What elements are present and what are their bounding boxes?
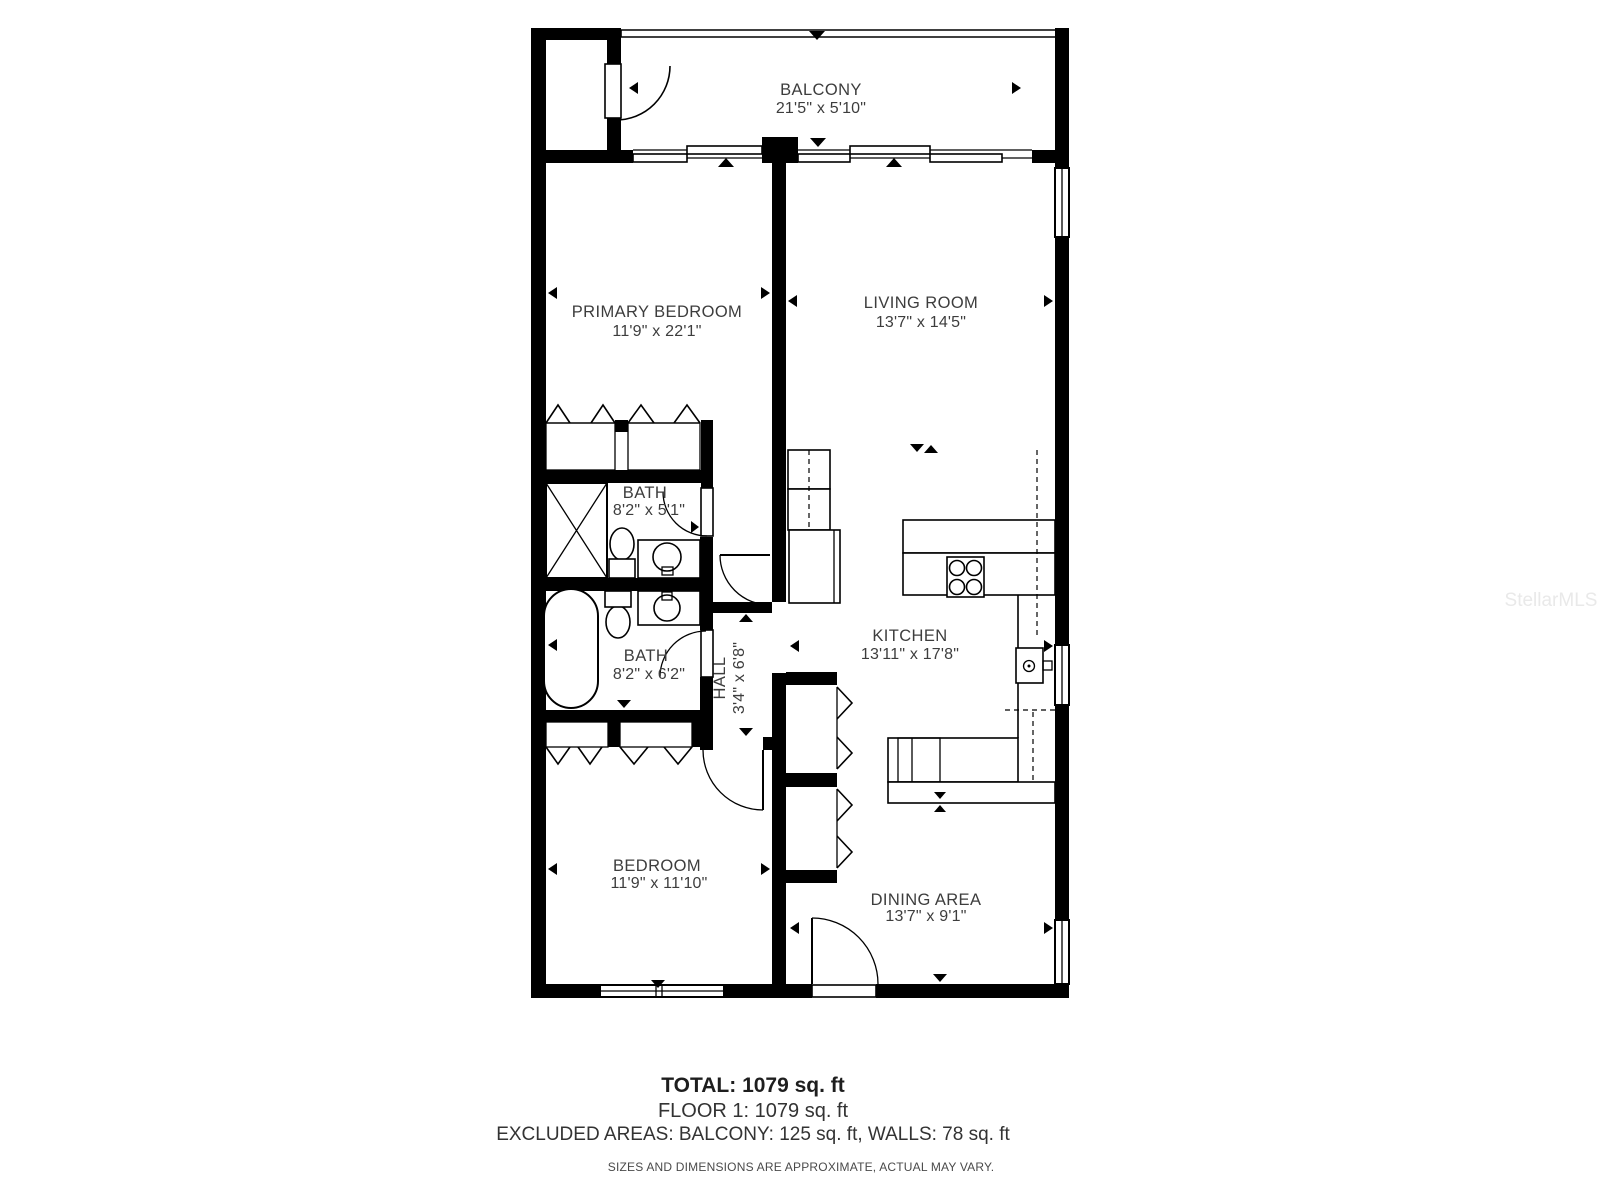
excluded-areas-text: EXCLUDED AREAS: BALCONY: 125 sq. ft, WAL… [496,1124,1010,1145]
label-kitchen: KITCHEN [872,627,947,645]
dims-living-room: 13'7" x 14'5" [876,314,966,331]
total-area-text: TOTAL: 1079 sq. ft [661,1074,845,1097]
label-bath-upper: BATH [623,484,667,502]
dims-dining-area: 13'7" x 9'1" [885,908,966,925]
watermark: StellarMLS [1505,590,1598,611]
label-hall: HALL 3'4" x 6'8" [711,642,748,714]
dims-bath-lower: 8'2" x 6'2" [613,666,685,683]
label-primary-bedroom: PRIMARY BEDROOM [572,303,742,321]
disclaimer-text: SIZES AND DIMENSIONS ARE APPROXIMATE, AC… [608,1160,994,1174]
sink-icon [638,591,700,625]
refrigerator-icon [788,450,840,603]
svg-text:3'4" x 6'8": 3'4" x 6'8" [731,642,748,714]
floor-plan-page: BALCONY 21'5" x 5'10" PRIMARY BEDROOM 11… [0,0,1600,1200]
dims-bedroom: 11'9" x 11'10" [610,875,707,892]
window-living [1055,168,1069,237]
window-bedroom [600,985,724,997]
label-dining-area: DINING AREA [871,891,982,909]
floor-area-text: FLOOR 1: 1079 sq. ft [658,1100,849,1122]
label-balcony: BALCONY [780,81,862,99]
balcony-railing [621,30,1055,37]
stove-icon [947,557,984,597]
dims-primary-bedroom: 11'9" x 22'1" [612,323,701,340]
dims-kitchen: 13'11" x 17'8" [861,646,959,663]
door-entry [812,918,878,997]
shower-icon [546,483,607,578]
floor-plan-canvas: BALCONY 21'5" x 5'10" PRIMARY BEDROOM 11… [0,0,1600,1200]
closet-chevrons-pantry [837,687,852,868]
door-bedroom [703,750,763,810]
label-bath-lower: BATH [624,647,668,665]
dims-bath-upper: 8'2" x 5'1" [613,502,685,519]
sink-icon [638,540,700,578]
dims-balcony: 21'5" x 5'10" [776,100,866,117]
door-kitchen [720,555,770,605]
window-dining [1055,920,1069,984]
label-living-room: LIVING ROOM [864,294,978,312]
closet-chevrons-bedroom [546,747,692,764]
window-kitchen [1055,645,1069,705]
kitchen-sink-icon [1016,648,1052,683]
toilet-icon [609,528,635,578]
label-bedroom: BEDROOM [613,857,701,875]
sliding-door [633,146,1032,162]
toilet-icon [605,591,631,638]
summary-block: TOTAL: 1079 sq. ft FLOOR 1: 1079 sq. ft … [496,1074,1010,1174]
svg-text:HALL: HALL [711,657,729,700]
